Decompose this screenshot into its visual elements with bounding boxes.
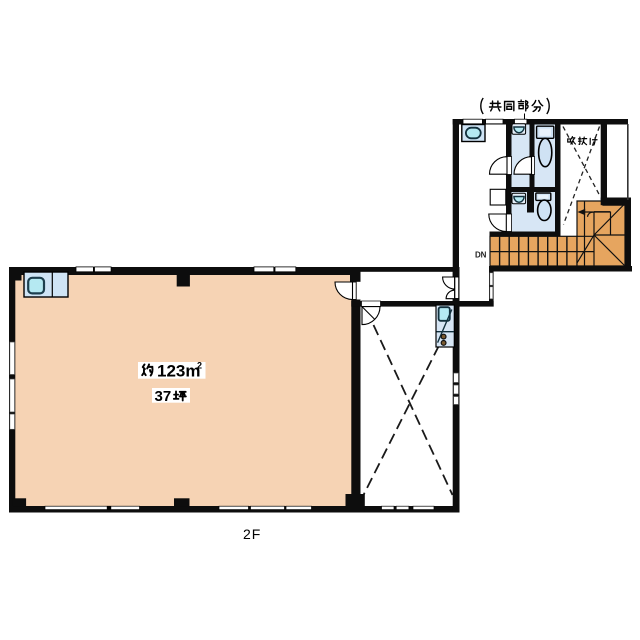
svg-text:2F: 2F [243,526,261,542]
svg-text:DN: DN [475,251,487,260]
svg-text:2: 2 [197,361,202,371]
svg-text:37: 37 [155,388,172,405]
svg-text:123m: 123m [157,362,200,381]
